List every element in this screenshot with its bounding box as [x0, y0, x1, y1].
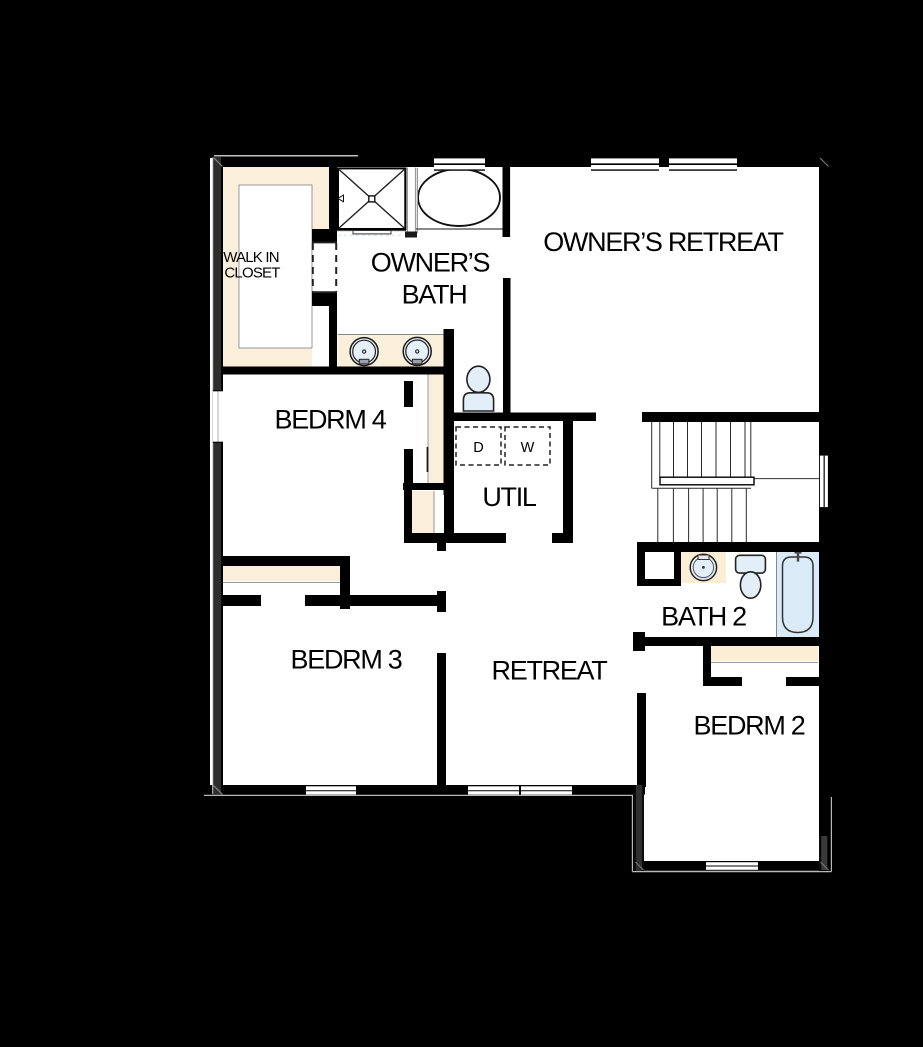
svg-text:BATH 2: BATH 2 [661, 601, 746, 631]
svg-text:BEDRM 3: BEDRM 3 [291, 645, 402, 675]
svg-text:UTIL: UTIL [482, 482, 537, 512]
svg-text:RETREAT: RETREAT [492, 656, 608, 686]
svg-text:D: D [473, 440, 483, 456]
svg-text:OWNER’S RETREAT: OWNER’S RETREAT [543, 227, 783, 257]
svg-text:OWNER’S: OWNER’S [371, 248, 490, 278]
svg-text:W: W [521, 440, 535, 456]
svg-text:BEDRM 4: BEDRM 4 [275, 405, 387, 435]
svg-text:CLOSET: CLOSET [224, 265, 280, 282]
svg-text:BATH: BATH [402, 280, 467, 310]
svg-text:BEDRM 2: BEDRM 2 [694, 710, 805, 740]
